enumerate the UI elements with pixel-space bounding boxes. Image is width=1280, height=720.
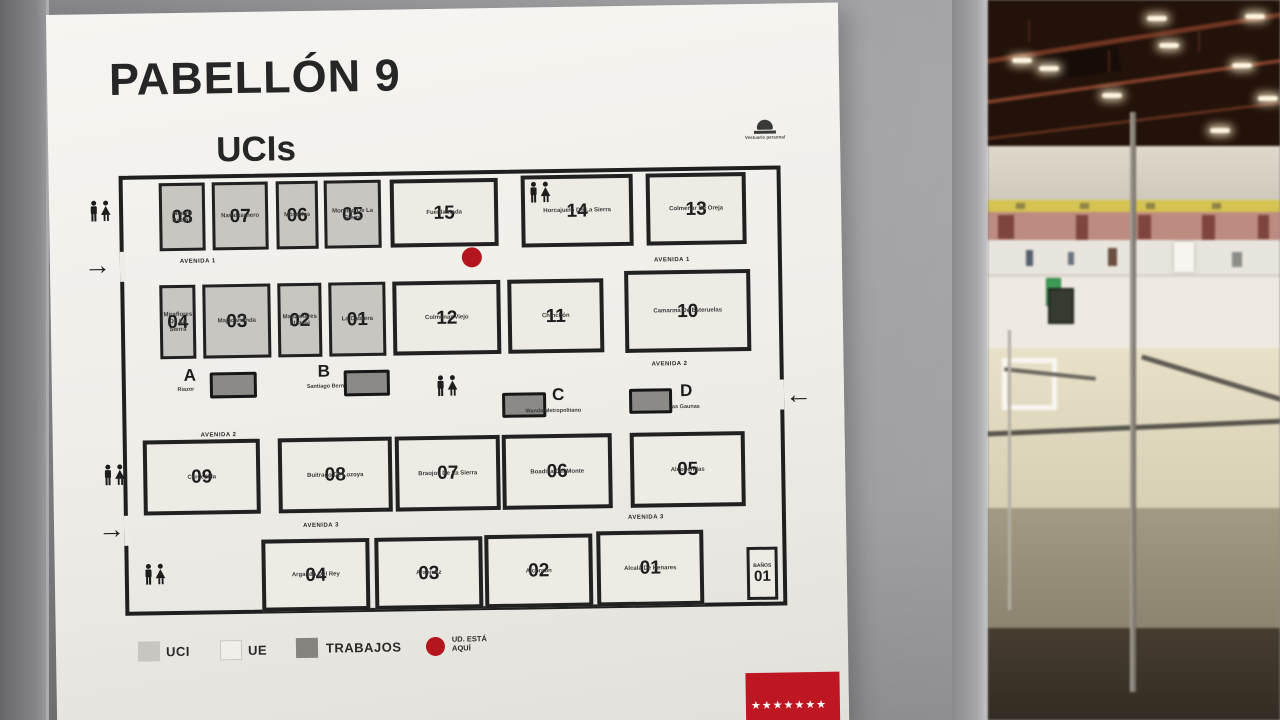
- work-area-letter: A: [184, 367, 197, 384]
- legend-swatch-ue: [220, 640, 242, 660]
- work-area-letter: B: [317, 363, 330, 380]
- room-box-uci: 03Majadahonda: [202, 284, 271, 359]
- room-box-ue: 03Aranjuez: [374, 536, 483, 610]
- service-bell-icon: [757, 120, 773, 130]
- pavilion-map-sign: PABELLÓN 9 UCIs Vestuario personal → → ←…: [46, 3, 849, 720]
- restroom-icon: [527, 181, 553, 203]
- staff-room-label: Vestuario personal: [740, 134, 790, 140]
- room-box-ue: 01Alcalá De Henares: [596, 530, 704, 607]
- person-in-white: [1174, 242, 1194, 272]
- room-box-ue: 07Braojos De La Sierra: [395, 435, 501, 512]
- star-icon: ★: [751, 701, 761, 712]
- ceiling-light: [1232, 63, 1252, 68]
- legend-label-uci: UCI: [166, 644, 190, 659]
- stripe-mark: [1212, 203, 1221, 209]
- avenue-label: AVENIDA 3: [628, 514, 664, 521]
- room-name: Braojos De La Sierra: [418, 470, 477, 478]
- person-silhouette: [1068, 252, 1074, 265]
- ceiling-light: [1258, 96, 1278, 101]
- person-silhouette: [1026, 250, 1033, 266]
- room-box-ue: 02Alcorcón: [484, 533, 593, 608]
- light-switch: [1048, 288, 1074, 324]
- room-box-uci: 04Miraflores De La Sierra: [159, 285, 196, 360]
- room-box-ue: 12Colmenar Viejo: [392, 280, 501, 356]
- star-icon: ★: [794, 700, 804, 711]
- room-name: Camarma De Esteruelas: [653, 308, 722, 316]
- legend-label-you-are-here: UD. ESTÁ AQUÍ: [452, 635, 504, 653]
- room-box-uci: 07Navalcarnero: [212, 182, 269, 251]
- room-name: Aranjuez: [416, 570, 441, 578]
- room-name: La Cabrera: [342, 316, 373, 324]
- star-icon: ★: [783, 700, 793, 711]
- star-icon: ★: [805, 700, 815, 711]
- room-name: Móstoles: [284, 212, 310, 220]
- room-name: Navalcarnero: [221, 213, 259, 221]
- room-box-uci: 01La Cabrera: [328, 282, 386, 357]
- sign-subtitle: UCIs: [216, 129, 296, 170]
- entrance-arrow-icon: →: [98, 516, 125, 543]
- room-name: Miraflores De La Sierra: [163, 312, 192, 334]
- stripe-mark: [1016, 203, 1025, 209]
- restroom-icon: [142, 563, 168, 585]
- work-area-name: Las Gaunas: [654, 404, 714, 412]
- room-name: Manzanares El Real: [282, 314, 318, 329]
- ceiling-light: [1210, 128, 1230, 133]
- star-icon: ★: [773, 701, 783, 712]
- room-box-ue: 06Boadilla Del Monte: [502, 433, 613, 510]
- room-box-ue: 04Arganda Del Rey: [261, 538, 370, 612]
- room-name: Alcorcón: [526, 568, 552, 576]
- avenue-label: AVENIDA 3: [303, 522, 339, 529]
- room-name: Alcobendas: [671, 467, 705, 475]
- ceiling-light: [1012, 58, 1032, 63]
- person-silhouette: [1232, 252, 1242, 267]
- doorway-mark: [1138, 215, 1151, 239]
- ceiling-light: [1245, 14, 1265, 19]
- exhibition-hall-view: [988, 0, 1280, 720]
- room-box-ue: 13Colmenar De Oreja: [646, 172, 747, 246]
- stripe-mark: [1146, 203, 1155, 209]
- scaffold-pole: [1008, 330, 1011, 610]
- avenue-label: AVENIDA 2: [652, 361, 688, 368]
- doorway-mark: [1202, 215, 1215, 241]
- truss-hanger: [1108, 50, 1110, 72]
- avenue-label: AVENIDA 1: [180, 258, 216, 265]
- truss-hanger: [1028, 20, 1030, 42]
- wall-corner-post: [952, 0, 988, 720]
- work-area-name: Wanda Metropolitano: [522, 408, 584, 416]
- room-name: Colmenar De Oreja: [669, 206, 723, 214]
- work-area-box: [210, 372, 257, 399]
- room-name: Chinchón: [542, 313, 570, 321]
- entrance-gap: [120, 252, 125, 282]
- room-box-ue: 10Camarma De Esteruelas: [624, 269, 751, 353]
- legend-you-are-here-dot: [426, 637, 445, 656]
- work-area-name: Riazor: [156, 386, 216, 394]
- ceiling-light: [1159, 43, 1179, 48]
- scaffold-pole: [1130, 112, 1136, 692]
- legend-label-trabajos: TRABAJOS: [326, 639, 402, 655]
- room-name: Horcajuelo De La Sierra: [543, 208, 611, 216]
- doorway-mark: [1258, 215, 1269, 239]
- room-box-uci: 08Nuevo Baztán: [159, 183, 206, 252]
- room-box-ue: 08Buitrago De Lozoya: [278, 437, 393, 514]
- room-name: Alcalá De Henares: [624, 565, 676, 573]
- room-name: Cercedilla: [187, 474, 216, 482]
- staff-room-marker: Vestuario personal: [740, 119, 790, 140]
- entrance-arrow-icon: →: [84, 252, 111, 279]
- truss-hanger: [1198, 30, 1200, 52]
- exit-arrow-icon: ←: [785, 381, 812, 408]
- wall-panel-edge: [0, 0, 49, 720]
- room-name: Arganda Del Rey: [292, 572, 340, 580]
- banos-box: BAÑOS01: [746, 547, 778, 600]
- page-title: PABELLÓN 9: [109, 49, 401, 106]
- banos-number: 01: [754, 569, 771, 584]
- room-box-ue: 15Fuenlabrada: [390, 178, 499, 248]
- room-name: Montejo De La Sierra: [328, 208, 377, 223]
- star-icon: ★: [816, 700, 826, 711]
- legend-label-ue: UE: [248, 643, 267, 658]
- room-box-ue: 09Cercedilla: [143, 439, 261, 516]
- doorway-mark: [998, 215, 1014, 239]
- room-name: Boadilla Del Monte: [530, 469, 584, 477]
- stripe-mark: [1080, 203, 1089, 209]
- comunidad-madrid-logo: ★ ★ ★ ★ ★ ★ ★: [745, 672, 840, 720]
- room-box-uci: 02Manzanares El Real: [277, 283, 322, 358]
- ceiling-light: [1147, 16, 1167, 21]
- work-area-letter: C: [552, 386, 565, 403]
- restroom-icon: [434, 375, 460, 397]
- room-name: Fuenlabrada: [426, 210, 462, 218]
- legend-swatch-uci: [138, 641, 160, 661]
- ceiling-truss: [988, 7, 1280, 65]
- star-icon: ★: [762, 701, 772, 712]
- room-box-ue: 11Chinchón: [507, 278, 604, 353]
- ceiling-light: [1102, 93, 1122, 98]
- avenue-label: AVENIDA 1: [654, 257, 690, 264]
- entrance-gap: [779, 379, 784, 409]
- restroom-icon: [101, 464, 127, 486]
- person-silhouette: [1108, 248, 1117, 266]
- restroom-icon: [87, 200, 113, 222]
- photo-scene: PABELLÓN 9 UCIs Vestuario personal → → ←…: [0, 0, 1280, 720]
- work-area-letter: D: [680, 382, 693, 399]
- work-area-box: [344, 370, 390, 397]
- service-bell-base: [754, 131, 776, 134]
- room-name: Colmenar Viejo: [425, 315, 469, 323]
- ceiling-light: [1039, 66, 1059, 71]
- doorway-mark: [1076, 215, 1088, 241]
- room-name: Nuevo Baztán: [163, 210, 201, 225]
- avenue-label: AVENIDA 2: [201, 432, 237, 439]
- room-name: Majadahonda: [218, 318, 256, 326]
- room-name: Buitrago De Lozoya: [307, 472, 363, 480]
- room-box-ue: 05Alcobendas: [630, 431, 746, 508]
- room-box-uci: 05Montejo De La Sierra: [324, 180, 382, 249]
- room-box-uci: 06Móstoles: [276, 181, 319, 250]
- madrid-flag-stars: ★ ★ ★ ★ ★ ★ ★: [751, 700, 826, 712]
- legend-swatch-trabajos: [296, 638, 318, 658]
